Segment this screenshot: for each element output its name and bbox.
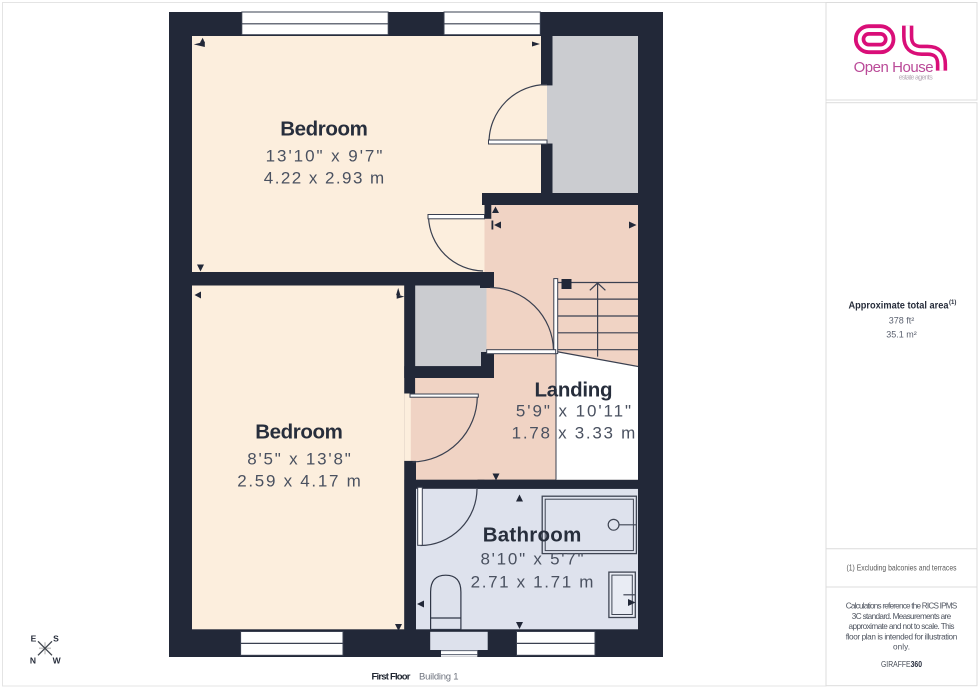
svg-text:Calculations reference the RIC: Calculations reference the RICS IPMS: [846, 602, 958, 611]
svg-text:4.22 x 2.93 m: 4.22 x 2.93 m: [264, 169, 384, 188]
svg-text:Landing: Landing: [535, 379, 613, 402]
svg-text:First Floor: First Floor: [372, 672, 411, 683]
svg-text:5'9" x 10'11": 5'9" x 10'11": [516, 402, 631, 421]
svg-text:E: E: [31, 633, 37, 643]
svg-text:378 ft²: 378 ft²: [889, 316, 915, 326]
svg-text:estate agents: estate agents: [899, 75, 934, 82]
svg-text:Open House: Open House: [854, 59, 934, 76]
svg-text:Bathroom: Bathroom: [483, 524, 582, 547]
svg-text:3C standard. Measurements are: 3C standard. Measurements are: [852, 612, 952, 621]
svg-text:8'5" x 13'8": 8'5" x 13'8": [247, 450, 351, 469]
svg-text:only.: only.: [893, 643, 910, 652]
svg-text:(1): (1): [949, 300, 956, 306]
svg-text:Bedroom: Bedroom: [280, 118, 368, 141]
svg-text:floor plan is intended for ill: floor plan is intended for illustration: [846, 632, 958, 641]
svg-text:GIRAFFE360: GIRAFFE360: [881, 659, 922, 669]
svg-text:35.1 m²: 35.1 m²: [886, 330, 917, 340]
svg-text:Building 1: Building 1: [419, 672, 459, 683]
svg-text:13'10" x 9'7": 13'10" x 9'7": [266, 147, 383, 166]
svg-text:S: S: [53, 633, 59, 643]
svg-text:Approximate total area: Approximate total area: [849, 301, 949, 312]
svg-text:Bedroom: Bedroom: [255, 421, 343, 444]
svg-text:N: N: [30, 655, 36, 665]
svg-text:W: W: [53, 655, 62, 665]
svg-text:(1) Excluding balconies and te: (1) Excluding balconies and terraces: [847, 564, 957, 573]
svg-text:approximate and not to scale.: approximate and not to scale. This: [849, 622, 955, 631]
